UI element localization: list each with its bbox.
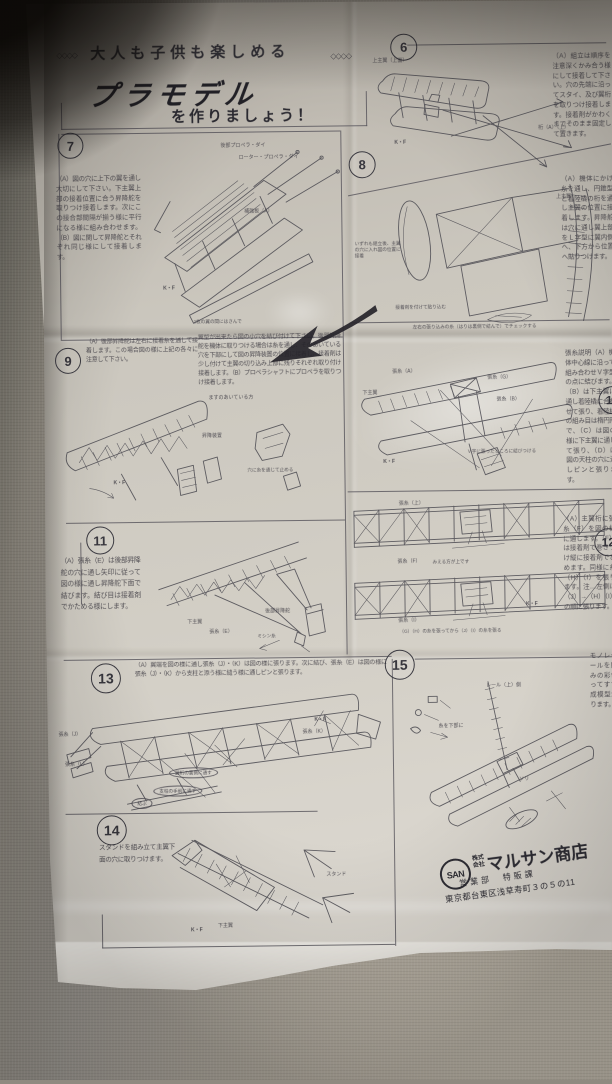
step-number-7: 7 xyxy=(57,133,83,159)
part-mark: K・F xyxy=(113,479,125,486)
company-type: 株式 会社 xyxy=(472,855,486,870)
part-label: 桁（A）（上） xyxy=(538,124,569,131)
part-label: いずれも組立後、主翼の穴に入れ図の位置に接着 xyxy=(355,241,405,260)
company-name: マルサン商店 xyxy=(485,837,589,875)
rule-s15-top xyxy=(415,656,612,660)
part-label: 下主翼 xyxy=(187,618,202,625)
company-type-line2: 会社 xyxy=(473,861,486,869)
part-label: 張糸（L） xyxy=(65,761,88,768)
step-number-11: 11 xyxy=(86,526,114,554)
step14-stand-drawing xyxy=(156,821,369,940)
step9-wing-elevator-drawing xyxy=(58,387,345,518)
step6-wing-assembly-drawing xyxy=(362,48,592,183)
rule-s13-s14-divider xyxy=(66,811,318,815)
part-label: 接着剤を付けて貼り込む xyxy=(395,304,446,311)
part-label: 上主翼（上面） xyxy=(372,57,407,64)
part-label: 穴に糸を通じて止める xyxy=(247,467,293,474)
step11-instructions: （A）張糸（E）は後部昇降舵の穴に通し矢印に従って図の様に通し昇降舵下面で結びま… xyxy=(60,555,141,656)
part-label: ソリ xyxy=(519,775,529,782)
step13-instructions: （A）翼端を図の様に通し張糸（J）・（K）は図の様に張ります。次に結び、張糸（E… xyxy=(135,659,387,682)
part-label: 後部プロペラ・ダイ xyxy=(220,141,265,149)
part-label: 糸を下部に xyxy=(438,722,463,729)
step13-full-biplane-drawing xyxy=(64,681,394,811)
page-tagline: 大人も子供も楽しめる xyxy=(90,40,290,63)
part-label: ますのあいている方 xyxy=(208,394,253,402)
step12-truss-front-views-drawing xyxy=(348,494,612,635)
part-mark: K・F xyxy=(526,600,538,607)
part-label: 張糸（I） xyxy=(398,617,419,624)
publisher-block: SAN 株式 会社 マルサン商店 営業部 特販課 東京都台東区浅草寿町３の５の1… xyxy=(428,825,612,919)
step-number-14: 14 xyxy=(97,815,127,845)
part-label: 後部昇降舵 xyxy=(265,607,290,614)
part-label: 補強板（A） xyxy=(244,207,272,214)
part-label: 張糸（F） xyxy=(397,558,420,565)
part-label: みえる方が上です xyxy=(432,559,469,565)
part-label: ローター・プロペラ・ダイ xyxy=(239,153,299,161)
step10-biplane-overview-drawing xyxy=(350,348,607,489)
step7-instructions: （A）図の穴に上下の翼を通し大切にして下さい。下主翼上部の接着位置に合う昇降舵を… xyxy=(56,174,143,337)
rule-bottom-border-left xyxy=(102,914,104,948)
part-label: 張糸（J） xyxy=(59,731,82,738)
part-label: 張糸（E） xyxy=(209,628,232,635)
part-label: スタンド xyxy=(326,870,346,877)
step9-instructions-col1: （A）後部昇降舵は左右に接着糸を通して接着します。この場合図の様に上記の各々に注… xyxy=(86,337,198,364)
part-label: 下主翼 xyxy=(362,389,377,396)
photo-of-instruction-sheet: { "header": { "deco_left": "◇◇◇◇", "tagl… xyxy=(0,0,612,1080)
title-frame-left xyxy=(61,103,63,130)
part-label: 上主翼 xyxy=(556,193,571,200)
deco-diamonds-right: ◇◇◇◇ xyxy=(330,51,351,60)
part-mark: K・F xyxy=(394,139,406,146)
drawing-caption: 2枚の翼の間にはさんで xyxy=(194,319,242,326)
part-label: 下主翼 xyxy=(218,922,233,929)
step11-thread-rigging-drawing xyxy=(148,535,349,655)
part-label: 張糸（K） xyxy=(303,728,326,735)
rule-s6-header xyxy=(407,42,606,46)
part-mark: K・F xyxy=(383,458,395,465)
instruction-sheet-paper: ◇◇◇◇ 大人も子供も楽しめる ◇◇◇◇ プラモデル を作りましょう！ 7 6 … xyxy=(0,0,612,1080)
rule-bottom-border xyxy=(102,944,395,949)
part-label: 張糸（B） xyxy=(496,395,519,402)
drawing-caption: Ｖ字に張ったところに結びつける xyxy=(467,448,536,455)
step15-finished-model-drawing xyxy=(400,672,602,839)
part-label: 張糸（A） xyxy=(392,368,415,375)
part-label: 昇降装置 xyxy=(202,432,222,439)
printed-content: ◇◇◇◇ 大人も子供も楽しめる ◇◇◇◇ プラモデル を作りましょう！ 7 6 … xyxy=(0,0,612,1084)
fold-direction-arrow xyxy=(265,299,378,378)
part-label: 張糸（G） xyxy=(487,373,511,380)
part-mark: K・F xyxy=(314,716,326,723)
subtitle-lets-build: を作りましょう！ xyxy=(171,104,315,127)
drawing-caption: （G）（H）の糸を張ってから（J）（I）の糸を張る xyxy=(399,628,501,635)
part-label: 張糸（上） xyxy=(399,499,424,506)
part-mark: K・F xyxy=(163,285,175,292)
rule-s7-top xyxy=(61,130,340,135)
part-mark: K・F xyxy=(191,926,203,933)
part-label: レール（上）側 xyxy=(486,681,521,688)
step-number-9: 9 xyxy=(55,348,81,374)
deco-diamonds-left: ◇◇◇◇ xyxy=(56,51,77,60)
part-label: ミシン糸 xyxy=(257,633,275,639)
rule-s9-bottom xyxy=(66,519,345,524)
drawing-caption: 左右の張り込みの糸（はりは裏側で結んで）でチェックする xyxy=(413,323,537,331)
